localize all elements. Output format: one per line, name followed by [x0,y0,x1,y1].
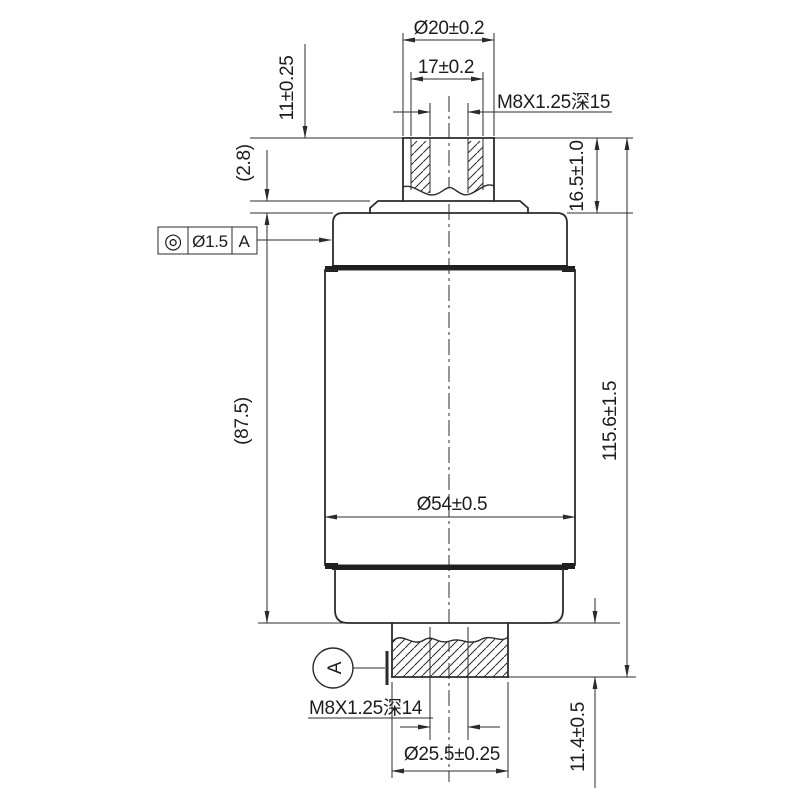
dim-top-outer-diameter-label: Ø20±0.2 [414,18,485,39]
dim-top-bore: 17±0.2 [411,57,483,136]
datum-label: A [325,661,346,674]
concentricity-icon: ◎ [164,230,182,253]
bottom-braze-band [325,563,575,570]
dim-step-height: (2.8) [234,144,267,201]
top-stud-section [403,138,494,201]
technical-drawing-canvas: Ø20±0.2 17±0.2 M8X1.25深15 11±0.25 (2.8) … [0,0,800,800]
dim-top-cap-height: 16.5±1.0 [567,138,597,213]
fcf-tolerance-label: Ø1.5 [192,232,228,251]
dim-boss-height: 11±0.25 [277,44,305,138]
dim-overall-length-label: 115.6±1.5 [600,381,621,461]
feature-control-frame: ◎ Ø1.5 A [158,227,331,254]
dim-body-diameter-label: Ø54±0.5 [417,494,488,515]
dim-top-thread: M8X1.25深15 [393,91,612,136]
dim-top-thread-label: M8X1.25深15 [497,91,610,113]
dim-bottom-thread: M8X1.25深14 [308,697,500,727]
bottom-stud-section [392,623,508,740]
dim-bottom-stud-diameter-label: Ø25.5±0.25 [404,744,500,765]
dim-bottom-stud-diameter: Ø25.5±0.25 [392,682,508,778]
horizontal-edges [250,138,636,677]
dim-bottom-thread-label: M8X1.25深14 [309,697,423,719]
dim-body-length-ref-label: (87.5) [232,397,253,445]
top-hatch-left [411,141,430,193]
dim-bottom-stud-height-label: 11.4±0.5 [568,702,589,772]
dim-body-diameter: Ø54±0.5 [325,494,575,517]
dim-step-height-label: (2.8) [234,144,255,182]
dim-bottom-stud-height: 11.4±0.5 [568,598,595,788]
top-end-cap [333,213,567,265]
top-braze-band [325,265,575,272]
datum-flag: A [313,648,387,688]
dim-top-cap-height-label: 16.5±1.0 [567,140,588,211]
dim-body-length-ref: (87.5) [232,213,267,623]
dim-boss-height-label: 11±0.25 [277,55,298,120]
dim-top-bore-label: 17±0.2 [418,57,474,78]
dim-overall-length: 115.6±1.5 [600,138,627,677]
top-hatch-right [468,141,483,193]
ceramic-body [325,270,575,565]
fcf-datum-ref-label: A [238,232,250,251]
